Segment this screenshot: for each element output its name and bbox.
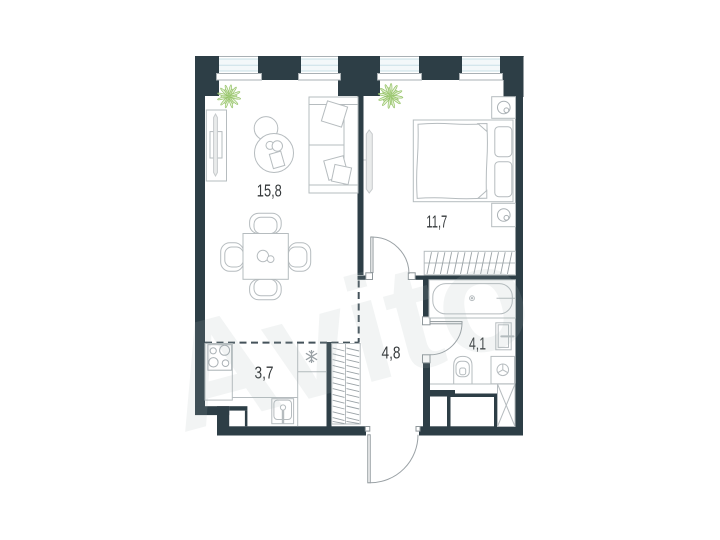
svg-text:15,8: 15,8 <box>257 181 282 201</box>
